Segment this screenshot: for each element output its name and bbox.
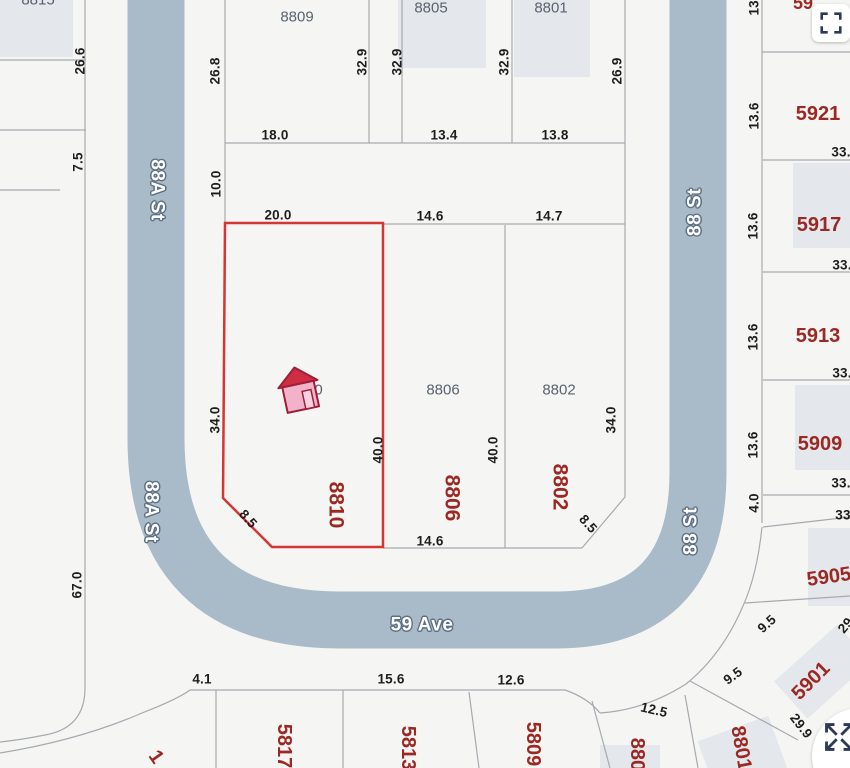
dimension-label: 34.0	[208, 406, 222, 433]
dimension-label: 40.0	[486, 436, 500, 463]
dimension-label: 40.0	[371, 436, 385, 463]
lot-address-red: 5813	[398, 726, 418, 768]
lot-address-red: 8801	[727, 724, 754, 768]
dimension-label: 33.	[832, 366, 850, 380]
dimension-label: 13.6	[747, 0, 761, 16]
lot-address-red: 59	[793, 0, 813, 12]
fullscreen-icon	[819, 11, 843, 35]
street-name-label: 59 Ave	[391, 616, 454, 635]
dimension-label: 13.6	[747, 102, 761, 129]
lot-address-red: 5913	[796, 326, 841, 346]
dimension-label: 34.0	[604, 406, 618, 433]
dimension-label: 13.4	[430, 128, 457, 142]
lot-address-red: 8805	[627, 738, 647, 768]
dimension-label: 26.6	[73, 47, 87, 74]
lot-address-red: 5809	[523, 722, 543, 767]
dimension-label: 67.0	[70, 571, 84, 598]
lot-address-red: 5905	[806, 564, 850, 590]
dimension-label: 13.8	[541, 128, 568, 142]
dimension-label: 33.	[831, 145, 850, 159]
dimension-label: 26.8	[208, 57, 222, 84]
fullscreen-button[interactable]	[812, 4, 850, 42]
dimension-label: 32.9	[355, 48, 369, 75]
dimension-label: 13.6	[746, 431, 760, 458]
dimension-label: 12.5	[639, 700, 668, 719]
dimension-label: 9.5	[755, 613, 778, 636]
lot-address-gray: 8815	[21, 0, 54, 8]
dimension-label: 14.6	[416, 534, 443, 548]
dimension-label: 10.0	[209, 170, 223, 197]
dimension-label: 18.0	[261, 128, 288, 142]
dimension-label: 32.9	[390, 48, 404, 75]
dimension-label: 13.6	[746, 212, 760, 239]
street-name-label: 88A St	[148, 159, 167, 220]
dimension-label: 13.6	[746, 323, 760, 350]
dimension-label: 33	[835, 508, 850, 522]
dimension-label: 33.	[831, 476, 850, 490]
house-icon[interactable]	[271, 360, 326, 418]
map-labels: 26.67.567.026.810.032.932.932.926.934.03…	[0, 0, 850, 768]
lot-address-red: 5921	[796, 104, 841, 124]
dimension-label: 32.9	[497, 48, 511, 75]
lot-address-gray: 8805	[414, 1, 447, 16]
street-name-label: 88A St	[142, 481, 161, 542]
dimension-label: 9.5	[721, 665, 745, 687]
dimension-label: 29.9	[787, 711, 814, 741]
dimension-label: 8.5	[577, 512, 600, 535]
lot-address-red: 5917	[797, 215, 842, 235]
dimension-label: 14.6	[416, 209, 443, 223]
dimension-label: 12.6	[497, 673, 524, 687]
dimension-label: 14.7	[535, 209, 562, 223]
lot-address-red: 8806	[442, 475, 463, 522]
street-name-label: 88 St	[686, 188, 705, 236]
plat-map[interactable]: 26.67.567.026.810.032.932.932.926.934.03…	[0, 0, 850, 768]
dimension-label: 4.0	[747, 493, 761, 512]
dimension-label: 15.6	[377, 672, 404, 686]
lot-address-red: 8802	[550, 464, 571, 511]
dimension-label: 7.5	[71, 152, 85, 171]
dimension-label: 8.5	[237, 507, 260, 530]
lot-address-gray: 8801	[534, 1, 567, 16]
dimension-label: 29.	[836, 612, 850, 636]
dimension-label: 4.1	[192, 672, 211, 686]
dimension-label: 26.9	[610, 57, 624, 84]
lot-address-red: 5909	[798, 434, 843, 454]
dimension-label: 33.	[832, 258, 850, 272]
lot-address-gray: 8806	[426, 383, 459, 398]
lot-address-red: 5901	[788, 658, 834, 704]
lot-address-red: 5817	[274, 724, 294, 768]
lot-address-gray: 8809	[280, 10, 313, 25]
dimension-label: 20.0	[264, 208, 291, 222]
expand-arrows-icon	[822, 720, 850, 754]
lot-address-red: 8810	[326, 482, 347, 529]
lot-address-red: 1	[145, 747, 168, 768]
lot-address-gray: 8802	[542, 383, 575, 398]
street-name-label: 88 St	[682, 507, 701, 555]
